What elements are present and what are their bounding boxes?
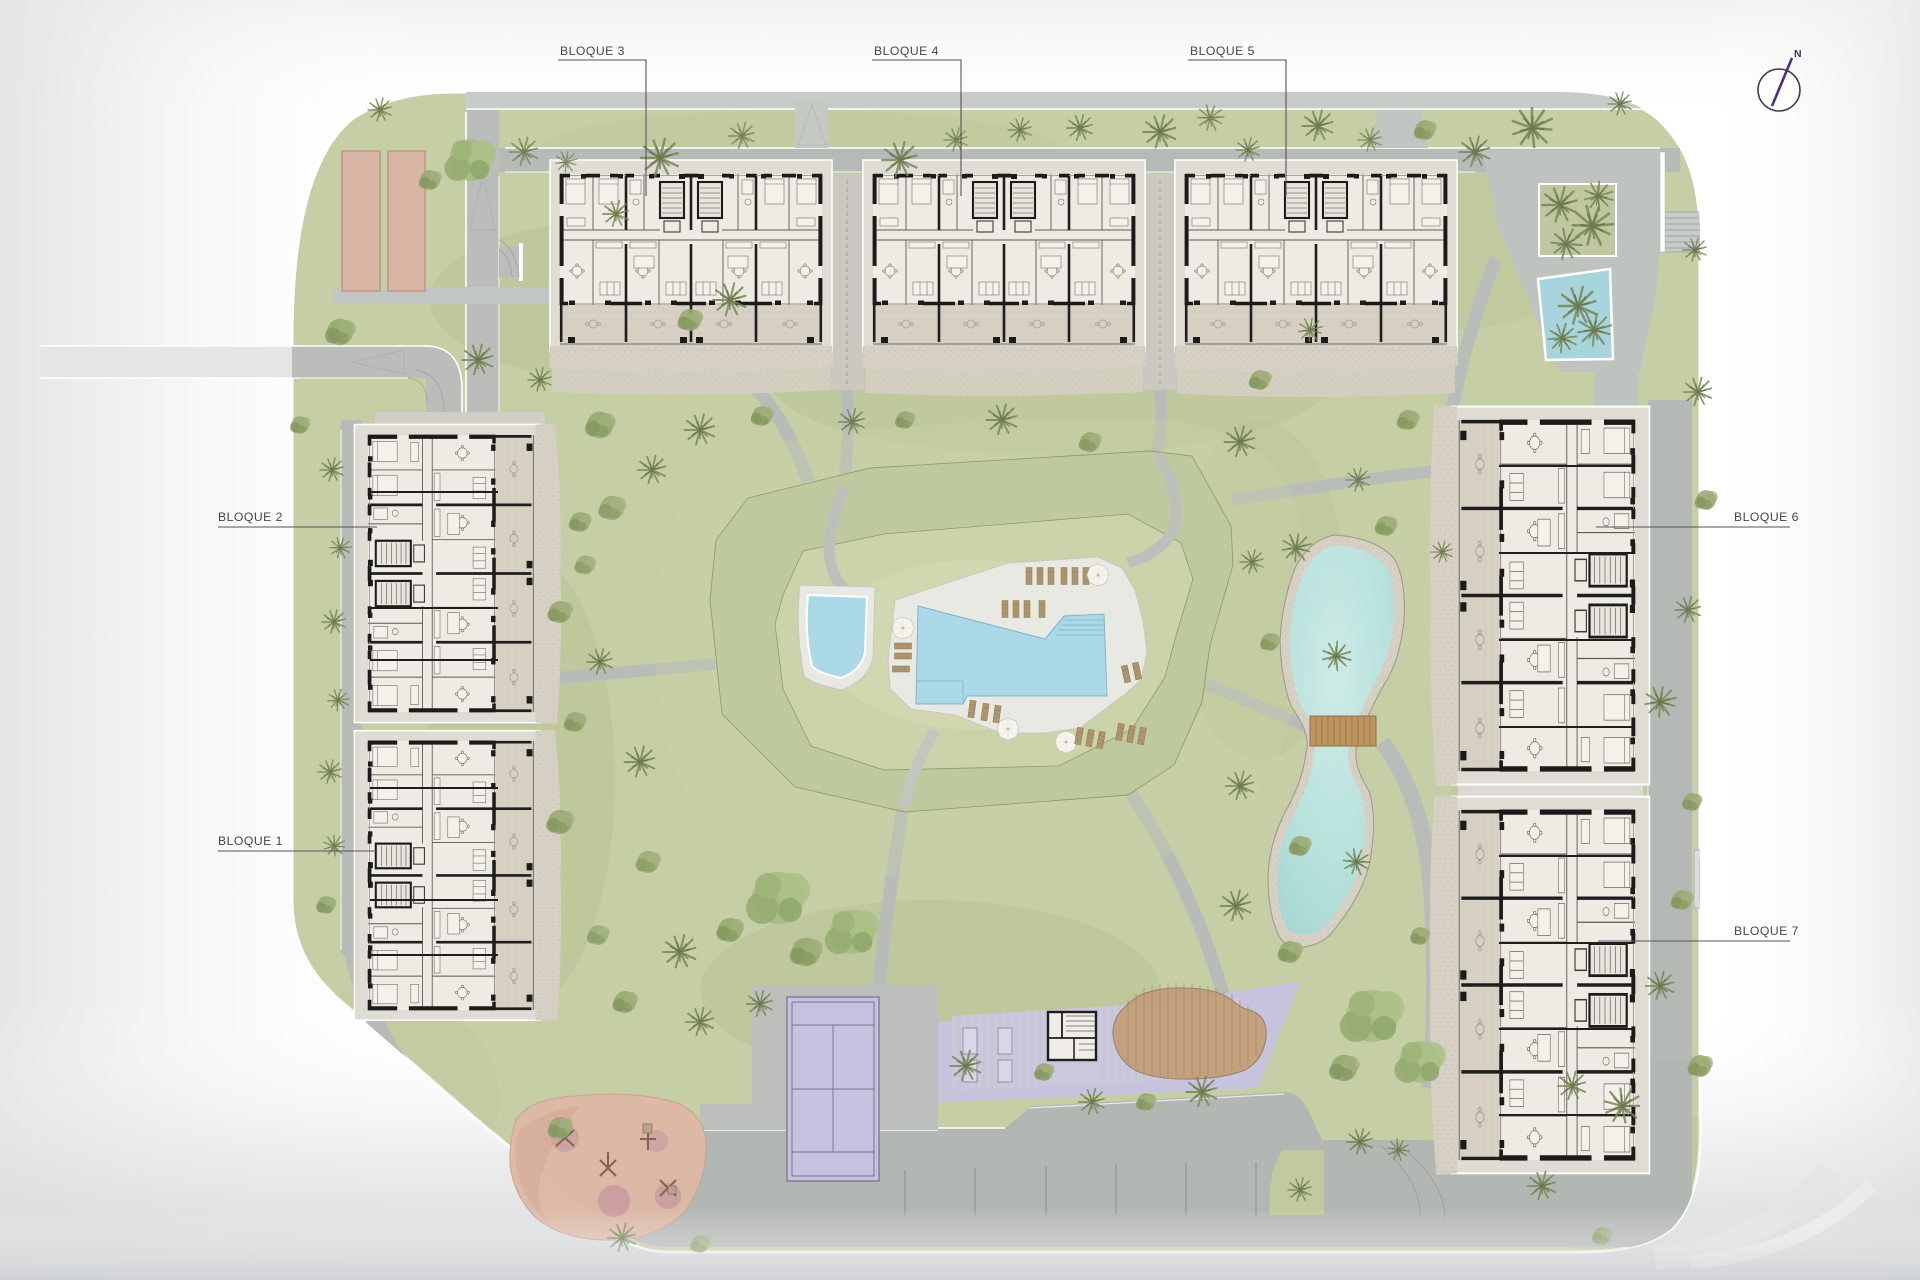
svg-text:BLOQUE 4: BLOQUE 4 [874, 44, 939, 58]
svg-text:BLOQUE 6: BLOQUE 6 [1734, 510, 1799, 524]
svg-text:BLOQUE 3: BLOQUE 3 [560, 44, 625, 58]
svg-text:BLOQUE 5: BLOQUE 5 [1190, 44, 1255, 58]
svg-text:BLOQUE 2: BLOQUE 2 [218, 510, 283, 524]
svg-text:BLOQUE 7: BLOQUE 7 [1734, 924, 1799, 938]
svg-text:N: N [1794, 48, 1802, 60]
svg-text:BLOQUE 1: BLOQUE 1 [218, 834, 283, 848]
